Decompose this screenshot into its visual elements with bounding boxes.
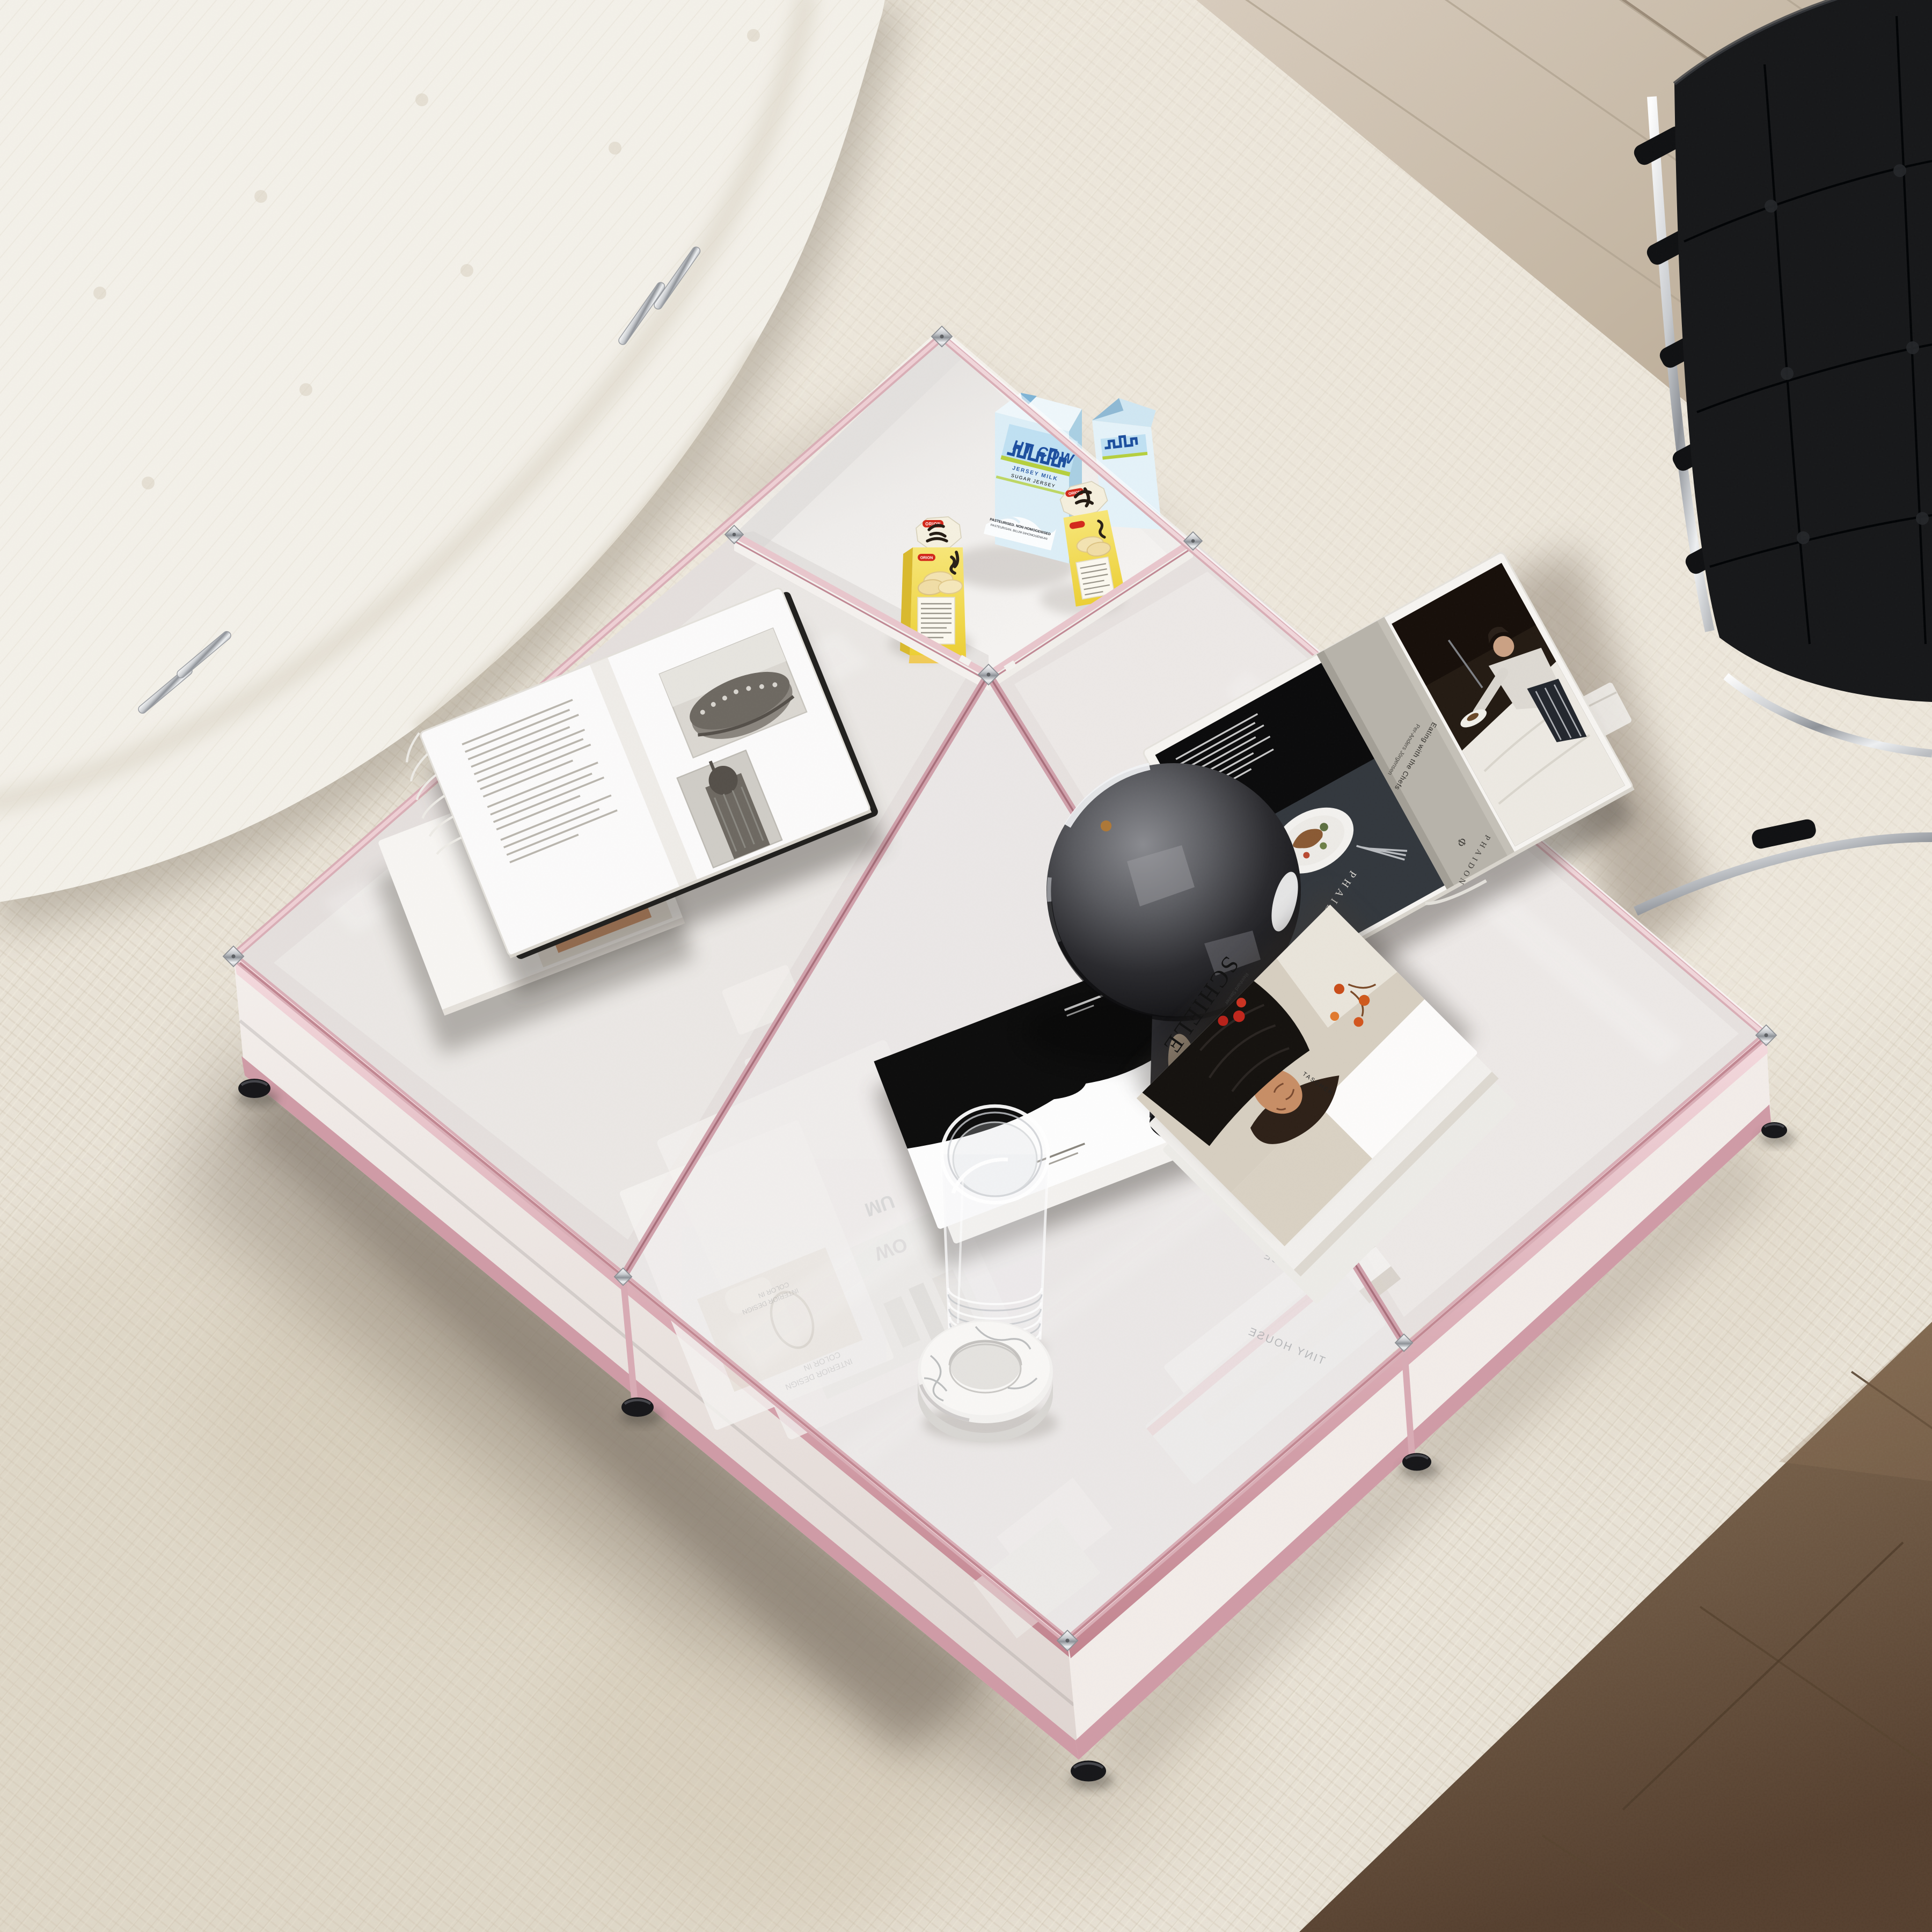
scene-living-room: MU WO COLOR IN INTERIOR DESIGN COLOR IN … bbox=[0, 0, 1932, 1932]
film-grain-overlay bbox=[0, 0, 1932, 1932]
